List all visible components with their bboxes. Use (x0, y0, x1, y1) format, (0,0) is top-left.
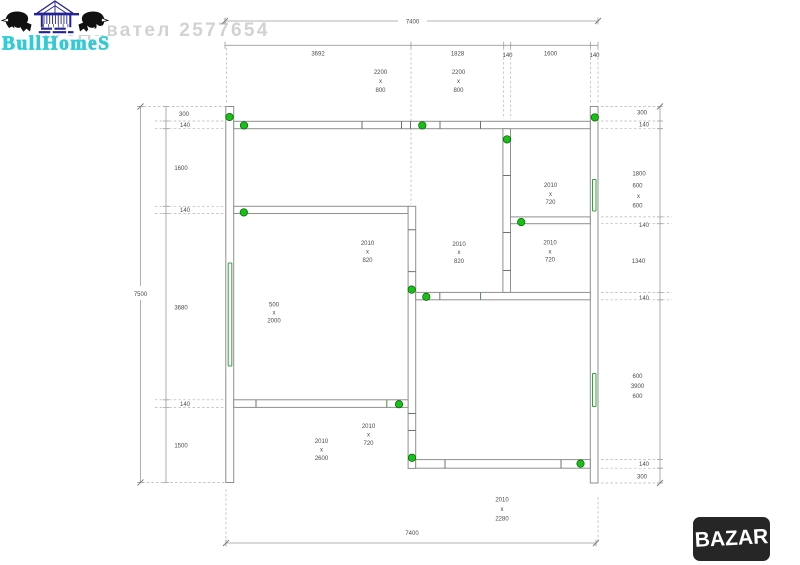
svg-text:BullHomeS: BullHomeS (2, 34, 109, 55)
svg-text:2200: 2200 (452, 70, 466, 76)
svg-text:3900: 3900 (631, 384, 645, 390)
svg-text:2010: 2010 (495, 498, 509, 504)
svg-text:140: 140 (180, 123, 191, 129)
svg-text:800: 800 (375, 88, 386, 94)
svg-text:x: x (549, 250, 552, 256)
svg-text:x: x (273, 311, 276, 317)
svg-text:2010: 2010 (361, 241, 375, 247)
svg-text:x: x (501, 507, 504, 513)
svg-text:600: 600 (632, 204, 643, 210)
svg-text:x: x (367, 433, 370, 439)
svg-text:2280: 2280 (495, 517, 509, 523)
svg-text:140: 140 (180, 208, 191, 214)
svg-text:2010: 2010 (452, 242, 466, 248)
svg-text:2200: 2200 (374, 70, 388, 76)
svg-text:820: 820 (362, 258, 373, 264)
svg-text:600: 600 (632, 184, 643, 190)
svg-text:2010: 2010 (544, 183, 558, 189)
svg-text:1500: 1500 (174, 443, 188, 449)
svg-text:2010: 2010 (543, 241, 557, 247)
svg-text:2600: 2600 (315, 456, 329, 462)
svg-text:820: 820 (454, 259, 465, 265)
svg-text:x: x (637, 194, 640, 200)
svg-text:7400: 7400 (406, 19, 420, 25)
svg-text:x: x (549, 192, 552, 198)
svg-text:140: 140 (502, 53, 513, 59)
svg-text:600: 600 (632, 374, 643, 380)
svg-text:2010: 2010 (315, 439, 329, 445)
svg-text:140: 140 (180, 402, 191, 408)
svg-text:720: 720 (363, 441, 374, 447)
svg-text:1340: 1340 (632, 259, 646, 265)
svg-text:2000: 2000 (267, 319, 281, 325)
svg-text:1600: 1600 (174, 166, 188, 172)
svg-text:7500: 7500 (134, 292, 148, 298)
svg-text:x: x (366, 250, 369, 256)
svg-text:x: x (458, 250, 461, 256)
svg-text:800: 800 (453, 88, 464, 94)
svg-text:2010: 2010 (362, 424, 376, 430)
svg-text:300: 300 (637, 475, 648, 481)
svg-text:1800: 1800 (632, 171, 646, 177)
svg-text:3692: 3692 (311, 52, 325, 58)
svg-text:140: 140 (639, 123, 650, 129)
svg-text:1600: 1600 (544, 52, 558, 58)
svg-text:7400: 7400 (405, 531, 419, 537)
svg-text:x: x (320, 448, 323, 454)
svg-text:300: 300 (637, 110, 648, 116)
svg-text:140: 140 (639, 462, 650, 468)
svg-text:1828: 1828 (451, 52, 465, 58)
svg-text:x: x (457, 79, 460, 85)
svg-text:3680: 3680 (174, 306, 188, 312)
svg-text:720: 720 (545, 200, 556, 206)
svg-text:300: 300 (179, 112, 190, 118)
svg-text:140: 140 (589, 53, 600, 59)
svg-text:720: 720 (545, 258, 556, 264)
svg-text:x: x (379, 79, 382, 85)
svg-text:500: 500 (269, 303, 280, 309)
svg-text:600: 600 (632, 394, 643, 400)
svg-text:140: 140 (639, 296, 650, 302)
